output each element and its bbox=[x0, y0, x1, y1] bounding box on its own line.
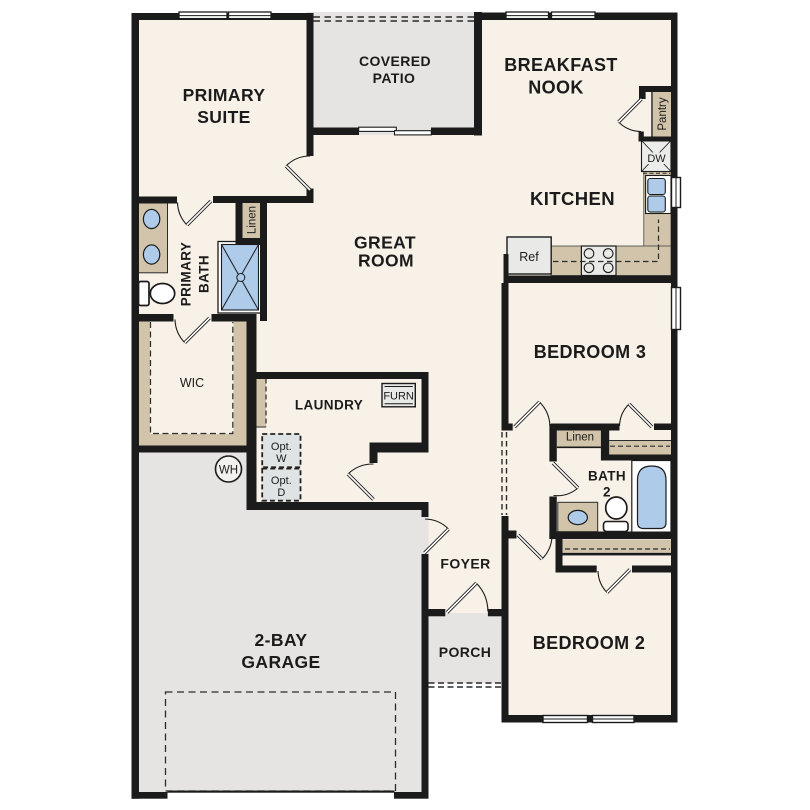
svg-text:FURN: FURN bbox=[383, 391, 414, 403]
svg-text:Pantry: Pantry bbox=[657, 97, 669, 130]
svg-text:Linen: Linen bbox=[247, 206, 259, 234]
svg-text:WH: WH bbox=[219, 464, 238, 476]
svg-text:BEDROOM 3: BEDROOM 3 bbox=[534, 342, 647, 362]
svg-text:2: 2 bbox=[603, 485, 611, 500]
svg-text:PRIMARY: PRIMARY bbox=[183, 85, 266, 105]
svg-text:BREAKFAST: BREAKFAST bbox=[504, 55, 618, 75]
svg-text:W: W bbox=[276, 453, 287, 465]
svg-text:ROOM: ROOM bbox=[358, 251, 414, 271]
svg-text:BATH: BATH bbox=[588, 469, 626, 484]
svg-text:DW: DW bbox=[647, 153, 666, 165]
svg-text:NOOK: NOOK bbox=[528, 78, 584, 98]
svg-text:FOYER: FOYER bbox=[440, 556, 490, 572]
svg-text:KITCHEN: KITCHEN bbox=[530, 188, 615, 209]
svg-text:PRIMARY: PRIMARY bbox=[179, 242, 194, 307]
svg-text:WIC: WIC bbox=[180, 376, 204, 390]
svg-text:COVERED: COVERED bbox=[359, 53, 431, 69]
svg-text:Ref: Ref bbox=[519, 250, 539, 264]
svg-text:PATIO: PATIO bbox=[373, 70, 416, 86]
svg-text:Opt.: Opt. bbox=[271, 441, 292, 453]
svg-text:LAUNDRY: LAUNDRY bbox=[295, 398, 363, 413]
svg-text:BEDROOM 2: BEDROOM 2 bbox=[533, 633, 646, 653]
svg-text:2-BAY: 2-BAY bbox=[255, 630, 308, 650]
svg-text:PORCH: PORCH bbox=[439, 644, 492, 660]
svg-text:Linen: Linen bbox=[566, 432, 594, 444]
svg-text:GREAT: GREAT bbox=[354, 233, 416, 253]
svg-text:GARAGE: GARAGE bbox=[241, 652, 320, 672]
svg-text:Opt.: Opt. bbox=[271, 475, 292, 487]
svg-text:D: D bbox=[277, 487, 285, 499]
svg-text:BATH: BATH bbox=[197, 255, 212, 293]
svg-text:SUITE: SUITE bbox=[197, 107, 251, 127]
